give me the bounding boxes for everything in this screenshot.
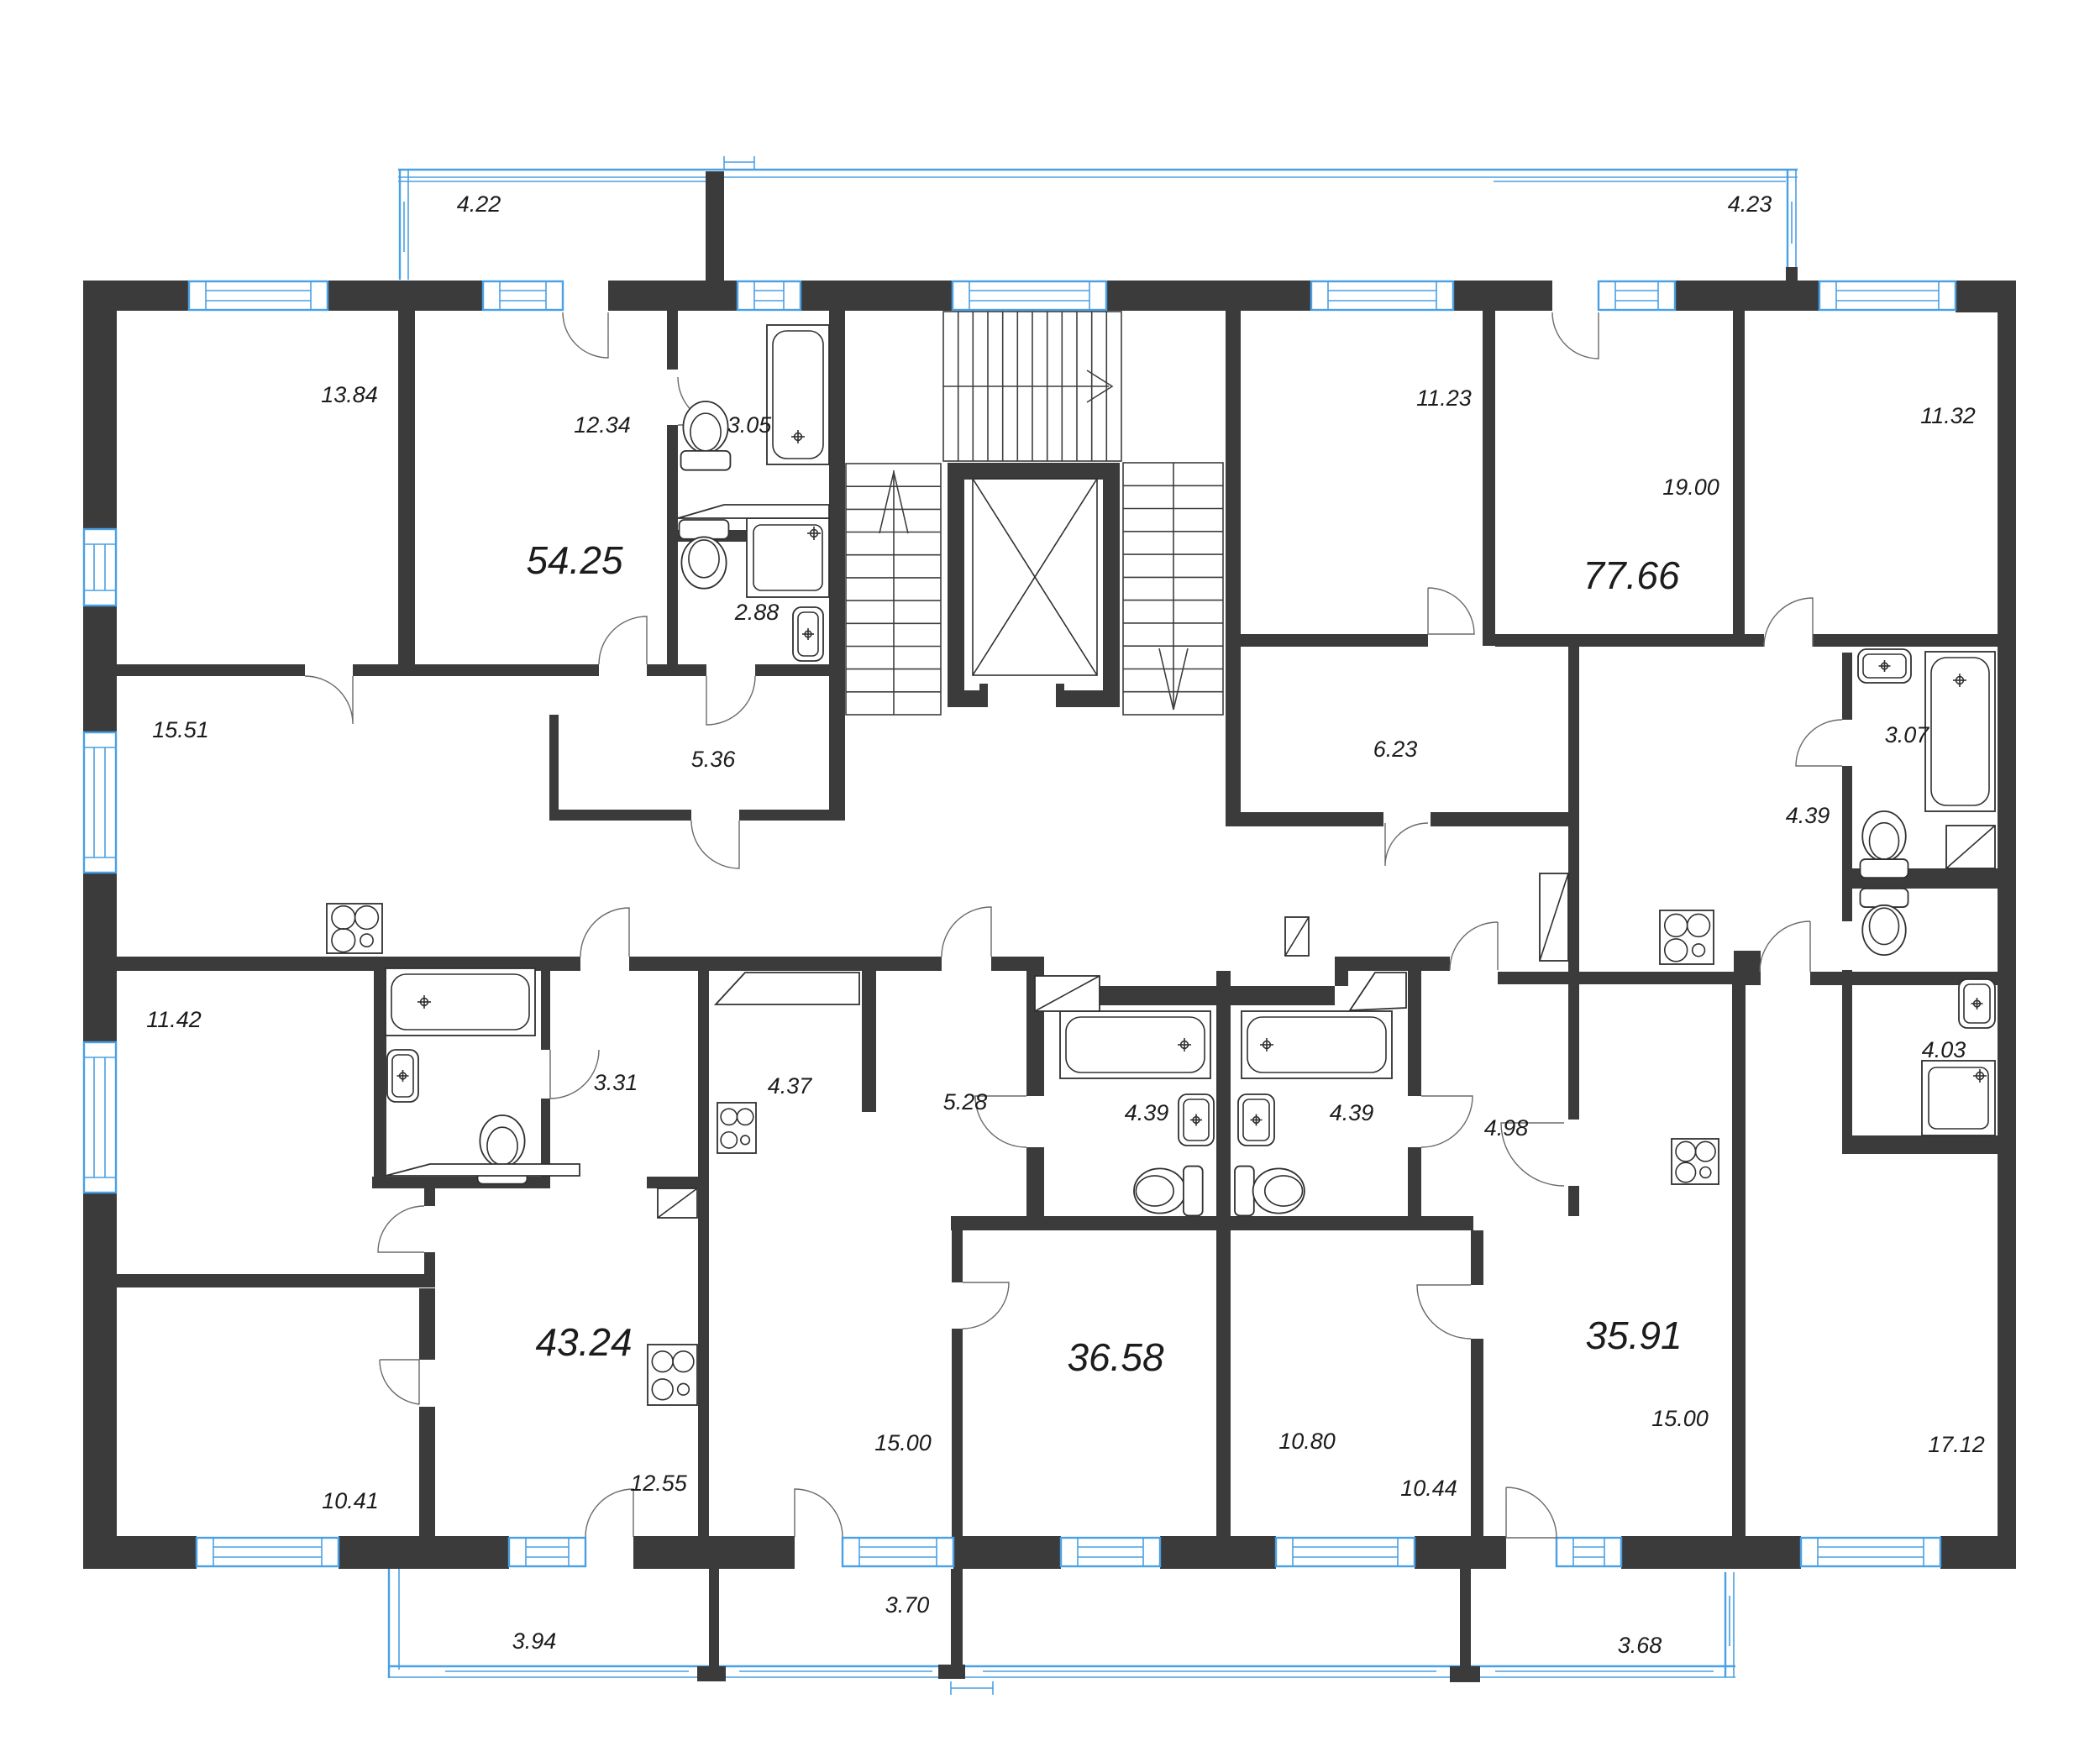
svg-text:13.84: 13.84 — [321, 382, 378, 407]
svg-text:3.68: 3.68 — [1618, 1633, 1662, 1658]
svg-text:35.91: 35.91 — [1585, 1314, 1682, 1357]
svg-text:4.39: 4.39 — [1330, 1100, 1374, 1125]
svg-text:36.58: 36.58 — [1067, 1335, 1164, 1379]
svg-text:3.07: 3.07 — [1885, 722, 1930, 747]
svg-text:10.44: 10.44 — [1400, 1476, 1457, 1501]
svg-text:15.51: 15.51 — [152, 717, 209, 742]
svg-text:43.24: 43.24 — [535, 1320, 632, 1364]
svg-text:12.55: 12.55 — [630, 1471, 688, 1496]
svg-text:3.31: 3.31 — [594, 1070, 638, 1095]
svg-text:11.42: 11.42 — [146, 1007, 202, 1032]
svg-text:2.88: 2.88 — [734, 600, 780, 625]
svg-text:10.80: 10.80 — [1278, 1429, 1336, 1454]
svg-text:5.36: 5.36 — [691, 747, 737, 772]
svg-text:3.94: 3.94 — [512, 1628, 557, 1654]
svg-text:4.37: 4.37 — [768, 1073, 813, 1099]
svg-text:3.05: 3.05 — [727, 412, 773, 438]
svg-text:4.23: 4.23 — [1728, 191, 1772, 217]
svg-text:10.41: 10.41 — [322, 1488, 379, 1513]
svg-text:4.39: 4.39 — [1125, 1100, 1169, 1125]
svg-text:4.39: 4.39 — [1786, 803, 1830, 828]
svg-text:15.00: 15.00 — [1651, 1406, 1709, 1431]
svg-text:77.66: 77.66 — [1583, 553, 1680, 597]
svg-text:4.22: 4.22 — [457, 191, 501, 217]
svg-text:54.25: 54.25 — [526, 538, 623, 582]
svg-text:17.12: 17.12 — [1928, 1432, 1985, 1457]
svg-text:6.23: 6.23 — [1373, 737, 1418, 762]
svg-text:15.00: 15.00 — [874, 1430, 932, 1455]
svg-text:19.00: 19.00 — [1662, 475, 1719, 500]
svg-text:4.03: 4.03 — [1922, 1037, 1966, 1062]
svg-text:3.70: 3.70 — [885, 1592, 930, 1618]
svg-text:5.28: 5.28 — [943, 1089, 988, 1114]
svg-text:12.34: 12.34 — [574, 412, 631, 438]
svg-text:11.32: 11.32 — [1920, 403, 1976, 428]
svg-text:4.98: 4.98 — [1484, 1115, 1529, 1141]
svg-text:11.23: 11.23 — [1416, 385, 1472, 411]
